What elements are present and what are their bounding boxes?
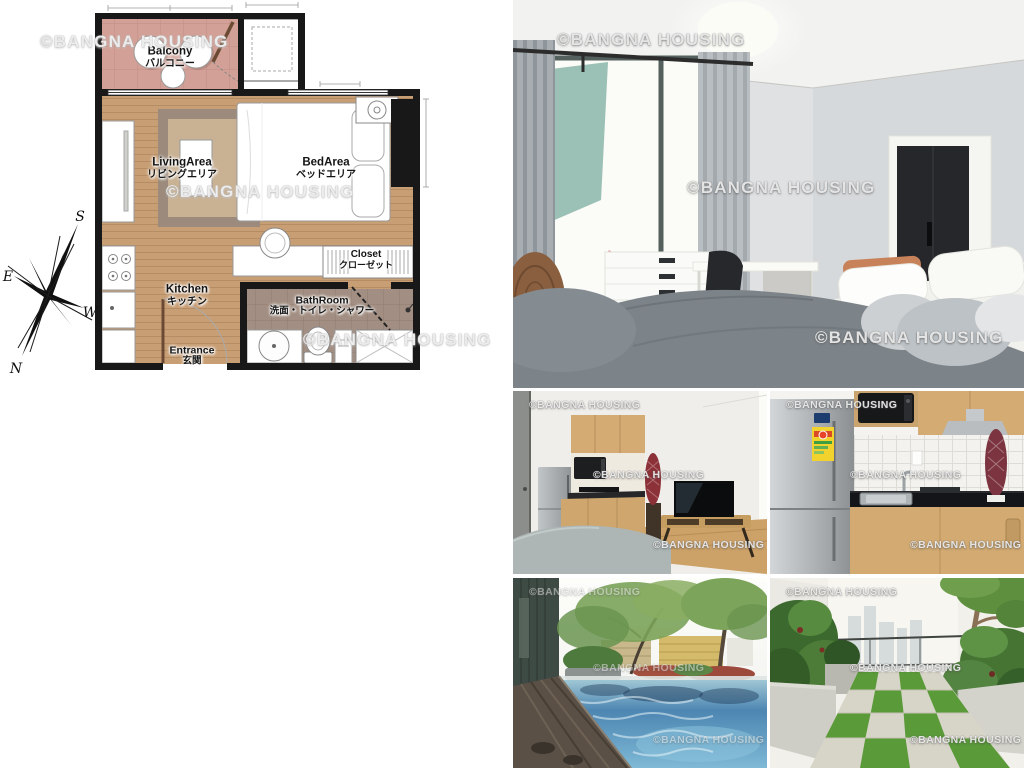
photo-garden-terrace: ©BANGNA HOUSING ©BANGNA HOUSING ©BANGNA …: [770, 578, 1024, 768]
room-label-balcony-ja: バルコニー: [145, 59, 195, 71]
room-label-bed-en: BedArea: [296, 157, 356, 170]
photo-bedroom-interior: ©BANGNA HOUSING ©BANGNA HOUSING ©BANGNA …: [513, 0, 1024, 388]
sofa: [513, 288, 1024, 388]
toilet: [304, 327, 332, 363]
room-label-closet-en: Closet: [339, 249, 393, 261]
room-label-entrance: Entrance 玄関: [170, 345, 215, 368]
lower-cabinets: [850, 507, 1024, 574]
room-label-kitchen: Kitchen キッチン: [166, 284, 208, 309]
bathroom-vanity: [247, 330, 302, 363]
microwave: [858, 393, 914, 423]
garden-terrace-illustration: [770, 578, 1024, 768]
room-label-living: LivingArea リビングエリア: [147, 157, 217, 182]
living-kitchen-illustration: [513, 391, 767, 574]
photo-living-kitchen: ©BANGNA HOUSING ©BANGNA HOUSING ©BANGNA …: [513, 391, 767, 574]
kitchen-sink-unit: [102, 292, 135, 328]
kitchen-closeup-illustration: [770, 391, 1024, 574]
dish-rack: [920, 487, 960, 493]
floor-plan: S E W N Balcony バルコニー LivingArea リビングエリア…: [0, 0, 510, 384]
light-switch: [912, 451, 922, 465]
compass-north: N: [9, 361, 23, 377]
washer-unit: [335, 330, 352, 363]
floor-plan-drawing: S E W N: [0, 0, 510, 384]
room-label-living-ja: リビングエリア: [147, 170, 217, 182]
compass-rose: S E W N: [2, 209, 99, 377]
fridge-label-blue: [814, 413, 830, 423]
room-label-living-en: LivingArea: [147, 157, 217, 170]
room-label-bed: BedArea ベッドエリア: [296, 157, 356, 182]
compass-west: W: [83, 305, 99, 321]
bedroom-interior-illustration: [513, 0, 1024, 388]
refrigerator: [770, 399, 854, 574]
room-label-balcony-en: Balcony: [145, 46, 195, 59]
room-label-kitchen-en: Kitchen: [166, 284, 208, 297]
stool: [260, 228, 290, 258]
upper-cabinets: [571, 415, 645, 493]
property-photo-collage: ©BANGNA HOUSING ©BANGNA HOUSING ©BANGNA …: [0, 0, 1024, 768]
energy-label: [812, 427, 834, 461]
room-label-entrance-ja: 玄関: [170, 357, 215, 368]
compass-east: E: [2, 269, 13, 285]
ceiling-lamp: [698, 2, 778, 58]
room-label-closet: Closet クローゼット: [339, 249, 393, 271]
kitchen-cabinet: [102, 330, 135, 363]
kitchen-stove-unit: [102, 246, 135, 290]
compass-south: S: [75, 209, 85, 225]
pool-edge: [559, 676, 767, 680]
photo-swimming-pool: ©BANGNA HOUSING ©BANGNA HOUSING ©BANGNA …: [513, 578, 767, 768]
room-label-bed-ja: ベッドエリア: [296, 170, 356, 182]
room-label-kitchen-ja: キッチン: [166, 297, 208, 309]
photo-kitchen-closeup: ©BANGNA HOUSING ©BANGNA HOUSING ©BANGNA …: [770, 391, 1024, 574]
room-label-bathroom-ja: 洗面・トイレ・シャワー: [270, 307, 375, 318]
ac-outdoor-compartment: [243, 19, 300, 81]
room-label-closet-ja: クローゼット: [339, 261, 393, 271]
tv-cabinet: [102, 121, 134, 222]
television: [674, 481, 734, 517]
room-label-balcony: Balcony バルコニー: [145, 46, 195, 71]
room-label-bathroom: BathRoom 洗面・トイレ・シャワー: [270, 295, 375, 318]
swimming-pool-illustration: [513, 578, 767, 768]
